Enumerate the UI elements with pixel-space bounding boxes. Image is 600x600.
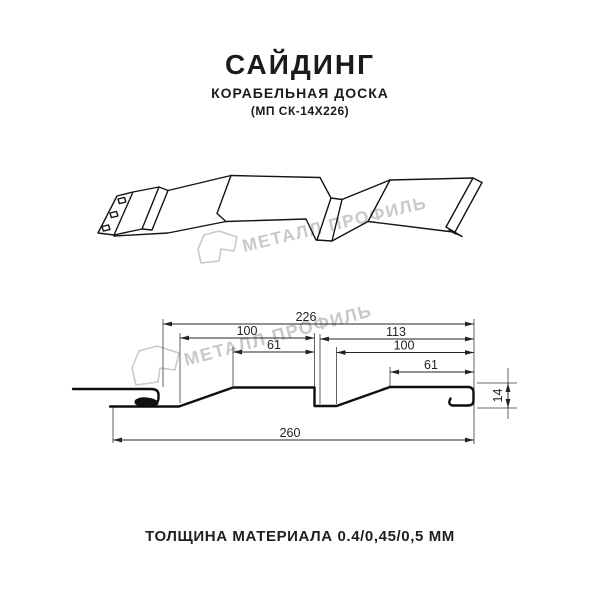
panel2-far-edge — [390, 178, 482, 183]
panel1-cut-edge — [217, 176, 231, 222]
technical-drawing: МЕТАЛЛ ПРОФИЛЬ МЕТАЛЛ ПРОФИЛЬ — [0, 0, 600, 600]
dim-left-panel: 100 — [237, 324, 258, 338]
dim-overall-width: 226 — [296, 310, 317, 324]
perforation-hole — [118, 197, 126, 203]
watermark-top: МЕТАЛЛ ПРОФИЛЬ — [198, 192, 429, 263]
thickness-note: ТОЛЩИНА МАТЕРИАЛА 0.4/0,45/0,5 ММ — [0, 528, 600, 545]
extension-lines — [113, 319, 517, 444]
perforation-hole — [110, 211, 118, 217]
cross-section-profile — [73, 387, 474, 407]
watermark-text: МЕТАЛЛ ПРОФИЛЬ — [182, 300, 374, 370]
dim-right-flat: 61 — [424, 358, 438, 372]
dim-profile-height: 14 — [491, 389, 505, 403]
dim-right-inner: 100 — [394, 339, 415, 353]
perforation-hole — [102, 225, 110, 231]
dimension-arrows — [113, 322, 510, 443]
dim-total-width: 260 — [280, 426, 301, 440]
watermark-text: МЕТАЛЛ ПРОФИЛЬ — [240, 192, 429, 256]
dim-right-panel: 113 — [386, 325, 406, 339]
dimension-lines — [113, 324, 508, 440]
product-drawing-page: САЙДИНГ КОРАБЕЛЬНАЯ ДОСКА (МП СК-14Х226)… — [0, 0, 600, 600]
end-fold-inner — [446, 178, 473, 227]
panel-profile-line — [110, 387, 474, 407]
interlock-detail — [134, 397, 158, 406]
end-fold-outer — [455, 183, 482, 233]
lock-fold — [142, 187, 168, 230]
dim-left-flat: 61 — [267, 338, 281, 352]
metal-profile-logo-icon — [132, 346, 179, 385]
riser-top-edge — [168, 176, 231, 191]
metal-profile-logo-icon — [198, 231, 237, 263]
groove-far-edge — [320, 178, 390, 200]
panel1-far-edge — [231, 176, 320, 178]
watermark-bottom: МЕТАЛЛ ПРОФИЛЬ — [132, 300, 374, 385]
